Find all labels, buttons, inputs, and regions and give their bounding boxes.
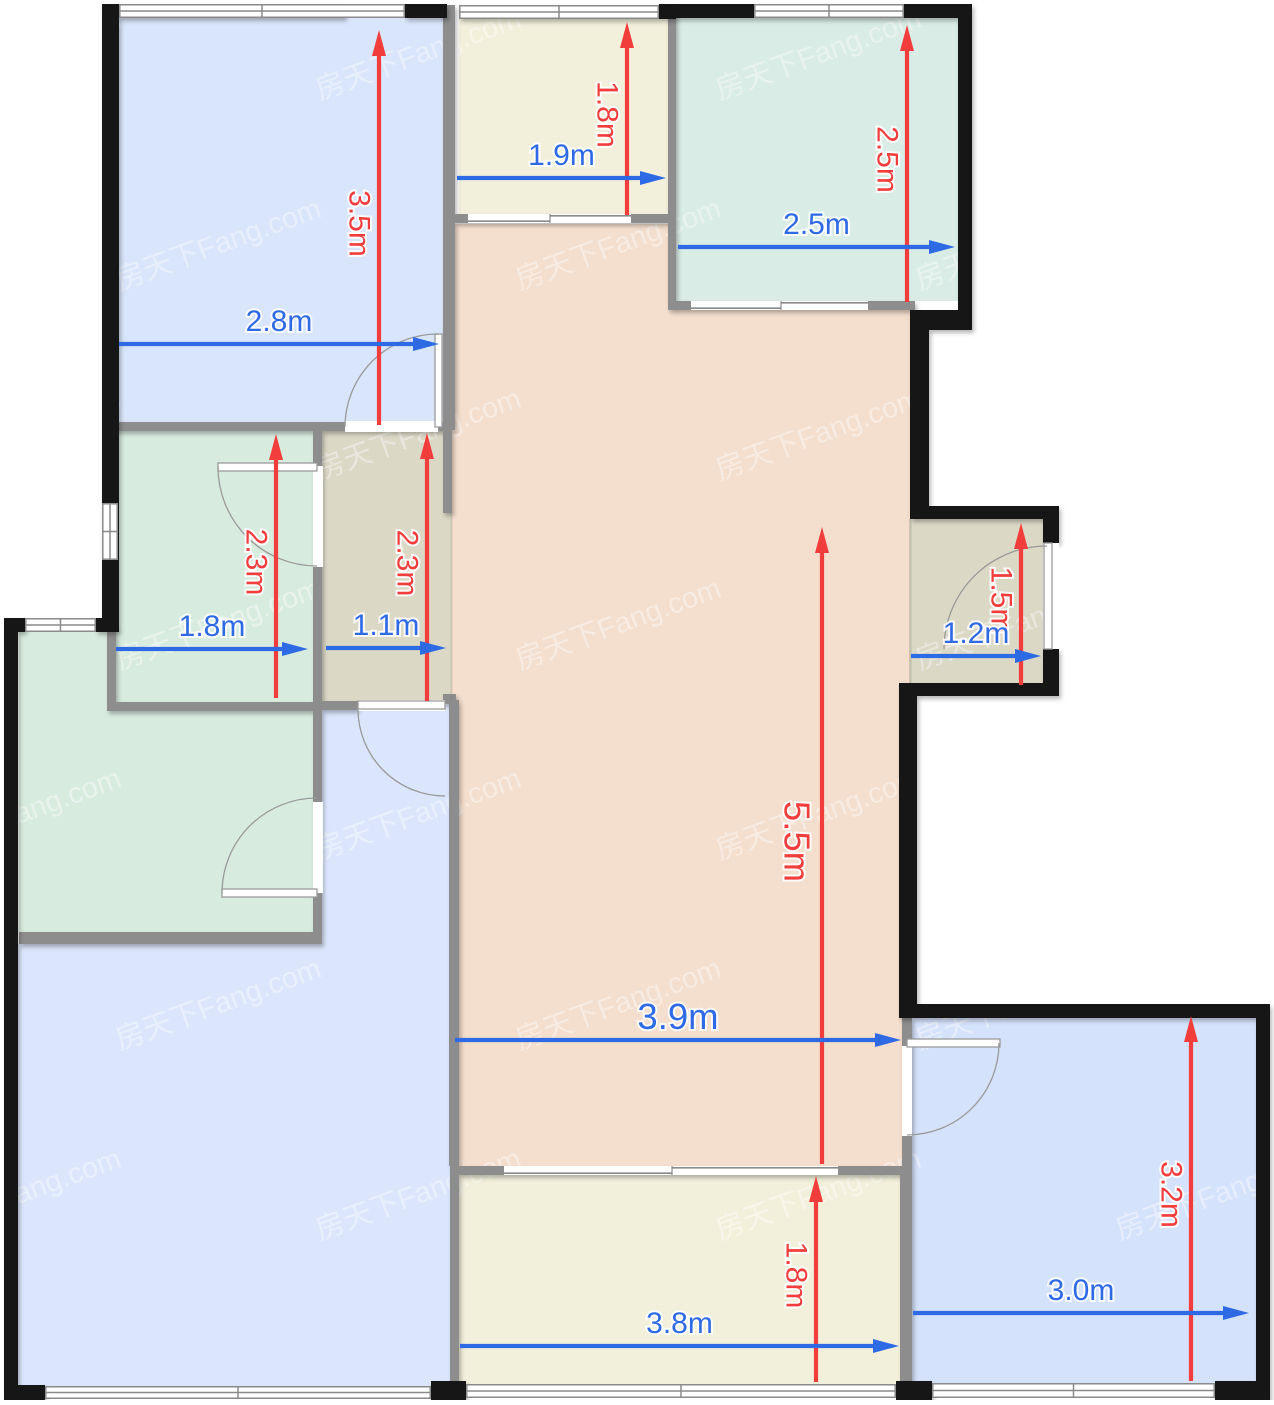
svg-text:房天下Fang.com: 房天下Fang.com (1111, 2, 1274, 107)
svg-text:3.5m: 3.5m (343, 190, 376, 257)
svg-text:3.2m: 3.2m (1155, 1161, 1188, 1228)
svg-text:2.5m: 2.5m (871, 126, 904, 193)
svg-text:1.8m: 1.8m (179, 610, 246, 643)
svg-text:1.9m: 1.9m (528, 139, 595, 172)
svg-text:1.8m: 1.8m (591, 81, 624, 148)
svg-text:3.0m: 3.0m (1048, 1274, 1115, 1307)
svg-text:2.8m: 2.8m (246, 305, 313, 338)
svg-text:2.5m: 2.5m (783, 208, 850, 241)
svg-text:5.5m: 5.5m (777, 801, 818, 882)
svg-text:房天下Fang.com: 房天下Fang.com (1111, 382, 1274, 487)
svg-text:房天下Fang.com: 房天下Fang.com (1111, 762, 1274, 867)
svg-text:1.1m: 1.1m (353, 609, 420, 642)
svg-text:3.8m: 3.8m (646, 1307, 713, 1340)
svg-text:2.3m: 2.3m (240, 529, 273, 596)
svg-text:2.3m: 2.3m (391, 530, 424, 597)
svg-text:3.9m: 3.9m (637, 996, 718, 1037)
svg-text:1.2m: 1.2m (943, 617, 1010, 650)
svg-text:1.8m: 1.8m (780, 1242, 813, 1309)
